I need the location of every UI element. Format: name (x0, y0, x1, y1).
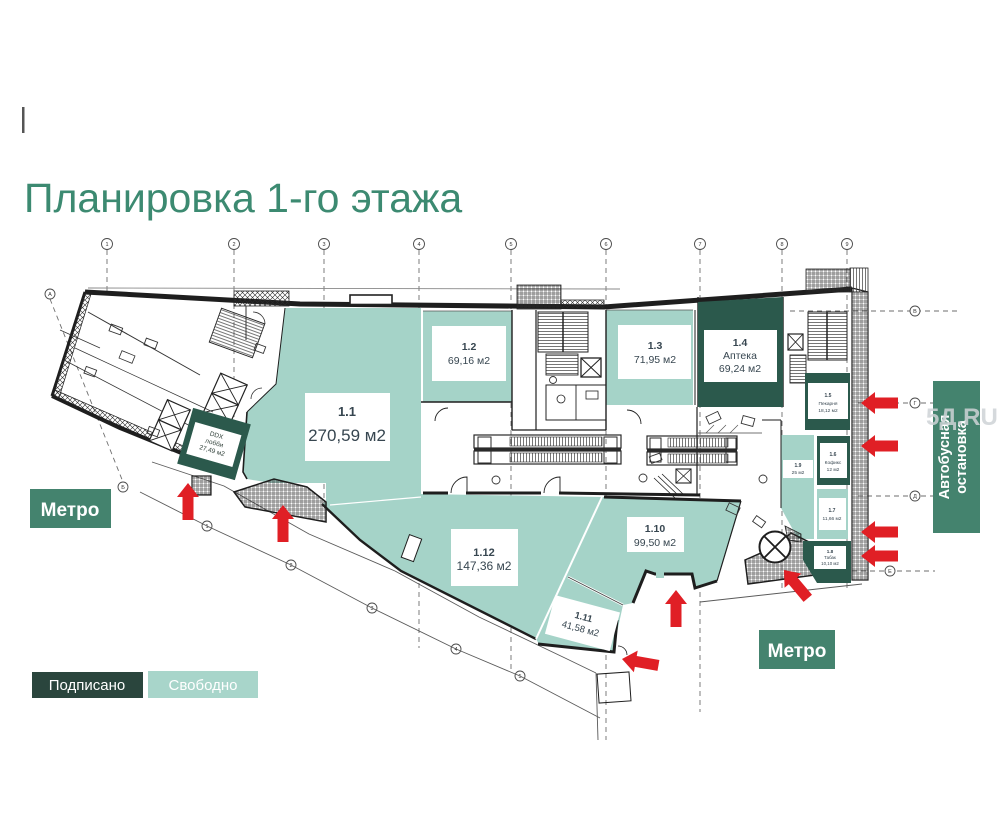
svg-text:Б: Б (121, 485, 125, 491)
svg-text:1: 1 (205, 524, 208, 530)
svg-text:4: 4 (454, 647, 457, 653)
svg-text:71,95 м2: 71,95 м2 (634, 354, 676, 366)
svg-text:Планировка 1-го этажа: Планировка 1-го этажа (24, 175, 462, 221)
svg-text:6: 6 (604, 242, 607, 248)
svg-text:4: 4 (417, 242, 420, 248)
svg-text:1.3: 1.3 (648, 340, 663, 352)
svg-text:Пекарня: Пекарня (819, 401, 838, 407)
svg-text:10,10 м2: 10,10 м2 (821, 561, 839, 566)
svg-text:Метро: Метро (41, 500, 100, 521)
svg-text:25 м2: 25 м2 (792, 470, 805, 476)
svg-text:1.5: 1.5 (825, 393, 832, 399)
svg-text:1: 1 (105, 242, 108, 248)
svg-text:69,24 м2: 69,24 м2 (719, 363, 761, 375)
svg-text:1.1: 1.1 (338, 404, 356, 419)
svg-text:12 м2: 12 м2 (827, 467, 840, 473)
svg-text:Г: Г (914, 401, 917, 407)
svg-text:69,16 м2: 69,16 м2 (448, 355, 490, 367)
svg-text:18,12 м2: 18,12 м2 (818, 408, 838, 414)
svg-text:3: 3 (322, 242, 325, 248)
svg-text:99,50 м2: 99,50 м2 (634, 537, 676, 549)
svg-text:1.2: 1.2 (462, 341, 477, 353)
svg-text:9: 9 (845, 242, 848, 248)
svg-text:5Д.RU: 5Д.RU (926, 404, 998, 431)
svg-text:270,59 м2: 270,59 м2 (308, 426, 386, 445)
svg-text:1.9: 1.9 (795, 463, 802, 469)
svg-text:7: 7 (698, 242, 701, 248)
svg-text:2: 2 (232, 242, 235, 248)
svg-text:1.12: 1.12 (473, 547, 494, 559)
svg-text:Кофикс: Кофикс (825, 460, 842, 466)
svg-text:Метро: Метро (768, 641, 827, 662)
svg-text:147,36 м2: 147,36 м2 (457, 559, 512, 573)
svg-text:Подписано: Подписано (49, 677, 126, 694)
svg-text:1.10: 1.10 (645, 523, 666, 535)
svg-text:1.6: 1.6 (830, 452, 837, 458)
svg-text:1.4: 1.4 (733, 337, 748, 349)
svg-text:Табак: Табак (824, 555, 836, 560)
svg-text:А: А (48, 292, 52, 298)
svg-text:8: 8 (780, 242, 783, 248)
svg-text:1.8: 1.8 (827, 549, 834, 554)
svg-text:Д: Д (913, 494, 917, 500)
svg-text:Е: Е (888, 569, 892, 575)
svg-text:В: В (913, 309, 917, 315)
svg-text:Аптека: Аптека (723, 350, 757, 362)
svg-text:5: 5 (509, 242, 512, 248)
svg-text:11,66 м2: 11,66 м2 (823, 516, 842, 522)
svg-text:Свободно: Свободно (169, 677, 238, 694)
svg-text:1.7: 1.7 (829, 508, 836, 514)
